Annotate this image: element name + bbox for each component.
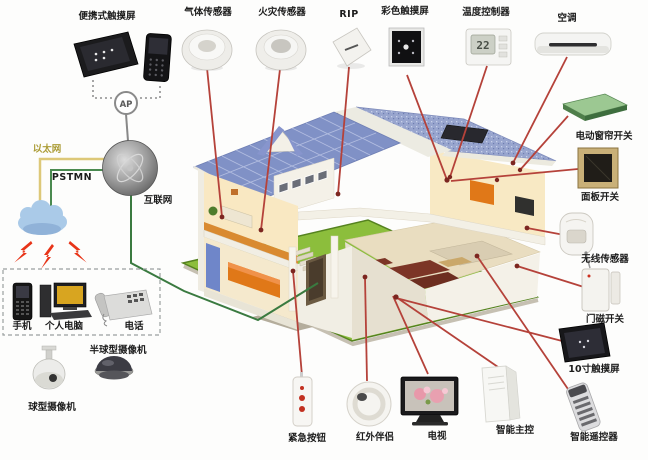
pc-icon <box>40 283 92 320</box>
label-ethernet: 以太网 <box>33 143 62 155</box>
fire-sensor-icon <box>256 30 306 71</box>
label-pir: RIP <box>339 9 358 20</box>
label-door-sensor: 门磁开关 <box>586 313 625 325</box>
ir-companion-icon <box>347 382 391 426</box>
label-mobile: 手机 <box>12 320 32 332</box>
label-wireless-sensor: 无线传感器 <box>580 253 629 265</box>
gas-sensor-icon <box>182 30 232 71</box>
label-thermostat: 温度控制器 <box>462 6 510 18</box>
ap-internet-link <box>126 114 128 141</box>
emergency-button-icon <box>293 372 312 426</box>
label-ac: 空调 <box>557 12 576 24</box>
label-ir-companion: 红外伴侣 <box>356 431 394 443</box>
front-door-inner <box>309 258 323 301</box>
picture-frame <box>231 189 238 195</box>
tv-icon <box>401 377 458 426</box>
ethernet-line <box>40 159 106 207</box>
label-main-controller: 智能主控 <box>496 424 535 436</box>
main-controller-icon <box>482 366 520 422</box>
touchscreen-10-icon <box>559 323 610 362</box>
label-gas-sensor: 气体传感器 <box>183 6 232 18</box>
label-emergency-button: 紧急按钮 <box>288 432 327 444</box>
label-dome-camera: 半球型摄像机 <box>89 344 147 356</box>
label-ap: AP <box>120 100 133 110</box>
wifi-dotted-link-tablet <box>93 80 112 98</box>
label-tv: 电视 <box>427 430 447 442</box>
label-pc: 个人电脑 <box>44 320 84 332</box>
porch-column-2 <box>331 236 338 298</box>
thermostat-reading: 22 <box>476 39 489 52</box>
label-fire-sensor: 火灾传感器 <box>258 6 306 18</box>
wifi-dotted-link-phone <box>140 86 160 98</box>
smart-home-diagram: 22 <box>0 0 648 460</box>
label-portable-touchscreen: 便携式触摸屏 <box>78 10 136 22</box>
internet-sphere <box>103 141 158 196</box>
plant <box>209 207 218 216</box>
label-curtain-switch: 电动窗帘开关 <box>575 130 633 142</box>
lightning-bolts <box>14 238 86 269</box>
label-smart-remote: 智能遥控器 <box>570 431 618 443</box>
tv-stand <box>416 415 444 422</box>
label-pstn: PSTMN <box>52 172 92 183</box>
portable-tablet-icon <box>74 32 138 77</box>
atom-nucleus <box>127 165 133 171</box>
label-ptz-camera: 球型摄像机 <box>28 401 76 413</box>
lightning-icon <box>14 238 33 265</box>
ptz-camera-icon <box>33 346 65 389</box>
camera-lens <box>49 374 57 382</box>
wireless-sensor-icon <box>560 213 593 255</box>
label-touchscreen-10: 10寸触摸屏 <box>568 363 620 375</box>
curtain-switch-icon <box>563 94 627 121</box>
air-conditioner-icon <box>535 33 611 55</box>
led-dot <box>588 275 591 278</box>
pir-sensor-icon <box>333 28 371 69</box>
cloud <box>18 200 67 235</box>
blue-wardrobe <box>206 243 220 292</box>
color-touchscreen-icon <box>389 28 424 66</box>
house-illustration <box>183 107 556 344</box>
label-color-touchscreen: 彩色触摸屏 <box>380 5 429 17</box>
left-edge-wall <box>198 168 204 292</box>
portable-phone-icon <box>143 33 171 82</box>
mobile-phone-icon <box>13 283 32 320</box>
label-telephone: 电话 <box>124 320 144 332</box>
thermostat-icon: 22 <box>466 29 511 65</box>
smart-remote-icon <box>565 382 601 433</box>
panel-switch-icon <box>578 148 618 188</box>
lightning-icon <box>68 238 87 265</box>
diagram-canvas: 22 <box>0 0 648 460</box>
lightning-icon <box>41 244 54 269</box>
label-panel-switch: 面板开关 <box>581 191 620 203</box>
dome-camera-icon <box>95 356 133 380</box>
label-internet: 互联网 <box>144 194 173 206</box>
